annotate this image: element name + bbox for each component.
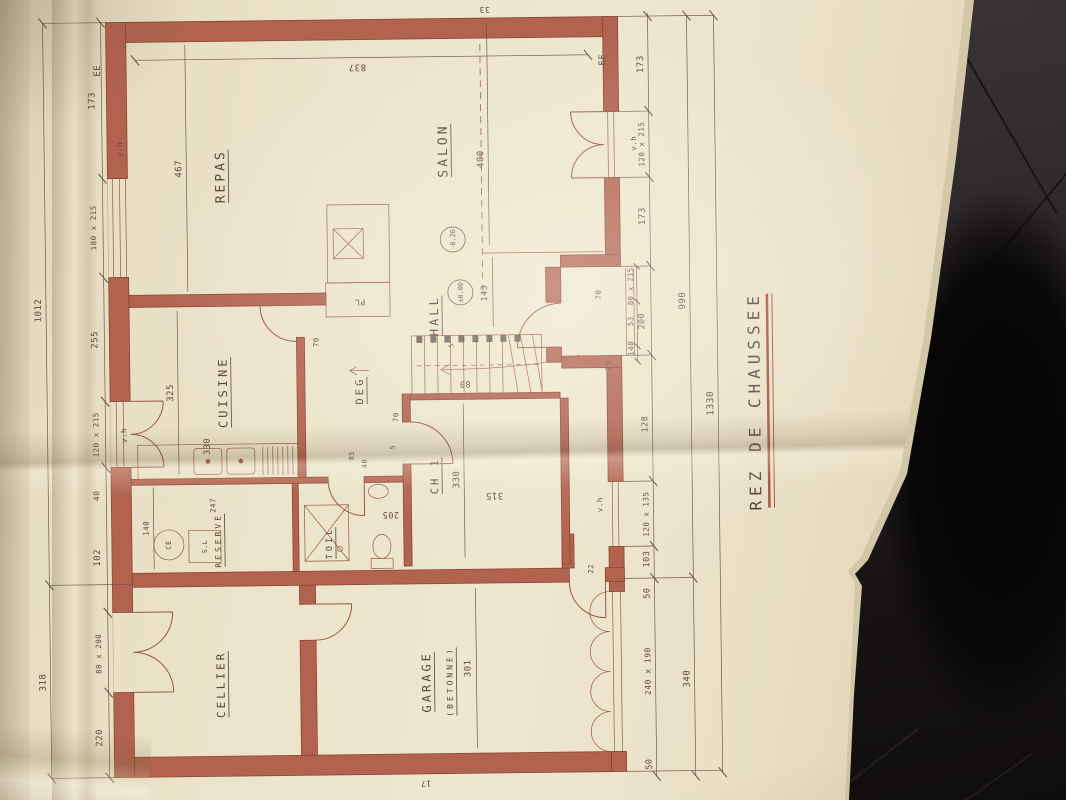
photo-of-floor-plan: REPASSALONCUISINEHALLDEGCH 1TOILRESERVEC… (0, 0, 1066, 800)
top-left-corner-shadow (0, 0, 240, 160)
bottom-left-fold (0, 723, 153, 800)
